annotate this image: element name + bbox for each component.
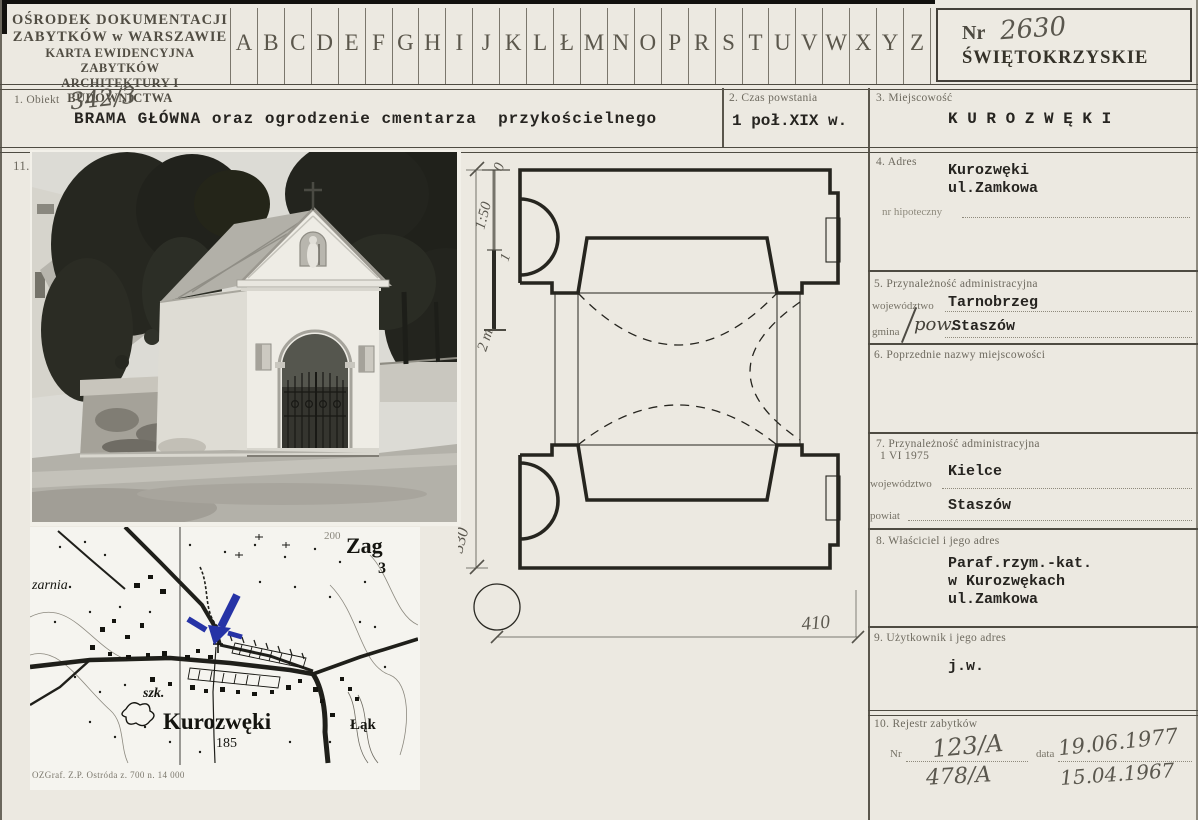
org-line: OŚRODEK DOKUMENTACJI bbox=[12, 12, 228, 29]
map-label-lak: Łąk bbox=[350, 717, 377, 733]
map-label-contour: 200 bbox=[324, 530, 341, 542]
scale-one-label: 1 bbox=[498, 252, 514, 264]
org-header: OŚRODEK DOKUMENTACJI ZABYTKÓW w WARSZAWI… bbox=[12, 12, 228, 78]
place-label: 3. Miejscowość bbox=[876, 92, 952, 104]
field6-label: 6. Poprzednie nazwy miejscowości bbox=[874, 349, 1045, 361]
field8-line2: w Kurozwękach bbox=[948, 573, 1065, 590]
fill-line bbox=[962, 216, 1190, 218]
alphabet-letter: B bbox=[258, 8, 285, 85]
field7-pow-value: Staszów bbox=[948, 497, 1011, 514]
alphabet-letter: S bbox=[716, 8, 743, 85]
photo-index-label: 11. bbox=[13, 158, 30, 174]
field-divider bbox=[868, 270, 1198, 272]
field7-woj-value: Kielce bbox=[948, 463, 1002, 480]
field5-gmina-handwritten: pow. bbox=[914, 314, 955, 335]
fill-line bbox=[945, 336, 1192, 338]
field8-line1: Paraf.rzym.-kat. bbox=[948, 555, 1092, 572]
alphabet-letter: V bbox=[796, 8, 823, 85]
location-map-image: zarnia Zag 3 200 szk. Kurozwęki 185 Łąk bbox=[30, 527, 418, 765]
alphabet-letter: K bbox=[500, 8, 527, 85]
field7-label: 7. Przynależność administracyjna bbox=[876, 438, 1040, 450]
width-dim-label: 410 bbox=[801, 612, 832, 635]
scale-two-label: 2 m. bbox=[475, 324, 498, 354]
field5-woj-value: Tarnobrzeg bbox=[948, 294, 1038, 311]
field7-label2: 1 VI 1975 bbox=[880, 450, 929, 462]
field5-gmina-value: Staszów bbox=[952, 318, 1015, 335]
field-divider bbox=[868, 710, 1198, 716]
alphabet-letter: I bbox=[446, 8, 473, 85]
alphabet-letter: N bbox=[608, 8, 635, 85]
field9-label: 9. Użytkownik i jego adres bbox=[874, 632, 1006, 644]
heritage-record-card: OŚRODEK DOKUMENTACJI ZABYTKÓW w WARSZAWI… bbox=[0, 0, 1198, 820]
org-line: KARTA EWIDENCYJNA ZABYTKÓW bbox=[12, 46, 228, 76]
map-label-elevation: 185 bbox=[216, 736, 237, 751]
map-caption: OZGraf. Z.P. Ostróda z. 700 n. 14 000 bbox=[30, 770, 420, 780]
scan-edge-left bbox=[0, 0, 2, 820]
map-label-szk: szk. bbox=[142, 686, 164, 701]
location-map: zarnia Zag 3 200 szk. Kurozwęki 185 Łąk … bbox=[30, 527, 420, 790]
alphabet-letter: R bbox=[689, 8, 716, 85]
field8-label: 8. Właściciel i jego adres bbox=[876, 535, 1000, 547]
alphabet-letter: Ł bbox=[554, 8, 581, 85]
field10-nr2-handwritten: 478/A bbox=[925, 762, 992, 790]
alphabet-letter: G bbox=[393, 8, 420, 85]
voivodeship-name: ŚWIĘTOKRZYSKIE bbox=[962, 48, 1148, 69]
field10-date-handwritten: 19.06.1977 bbox=[1057, 724, 1179, 760]
location-arrow-icon bbox=[188, 595, 242, 645]
alphabet-index: ABCDEFGHIJKLŁMNOPRSTUVWXYZ bbox=[230, 8, 931, 85]
header-divider bbox=[0, 84, 1198, 90]
alphabet-letter: A bbox=[231, 8, 258, 85]
object-name: BRAMA GŁÓWNA oraz ogrodzenie cmentarza p… bbox=[74, 110, 657, 128]
alphabet-letter: J bbox=[473, 8, 500, 85]
field9-value: j.w. bbox=[948, 658, 984, 675]
field10-nr-label: Nr bbox=[890, 748, 902, 760]
plan-drawing: 0 1:50 1 2 m. 530 410 bbox=[458, 150, 868, 665]
alphabet-letter: X bbox=[850, 8, 877, 85]
register-number-box: Nr 2630 ŚWIĘTOKRZYSKIE bbox=[936, 8, 1192, 82]
fill-line bbox=[906, 760, 1028, 762]
alphabet-letter: Y bbox=[877, 8, 904, 85]
map-label-town: Kurozwęki bbox=[163, 709, 272, 734]
nr-handwritten-value: 2630 bbox=[999, 12, 1067, 47]
gate-photo-image bbox=[32, 152, 457, 522]
alphabet-letter: C bbox=[285, 8, 312, 85]
org-line: ZABYTKÓW w WARSZAWIE bbox=[12, 29, 228, 46]
field4-address-line2: ul.Zamkowa bbox=[948, 180, 1038, 197]
height-dim-label: 530 bbox=[458, 525, 473, 555]
field4-sublabel: nr hipoteczny bbox=[882, 206, 942, 218]
field10-date2-handwritten: 15.04.1967 bbox=[1059, 758, 1175, 790]
time-label: 2. Czas powstania bbox=[729, 92, 817, 104]
divider bbox=[722, 88, 724, 148]
alphabet-letter: E bbox=[339, 8, 366, 85]
field-divider bbox=[868, 626, 1198, 628]
alphabet-letter: D bbox=[312, 8, 339, 85]
time-value: 1 poł.XIX w. bbox=[732, 112, 847, 130]
map-label-zarnia: zarnia bbox=[31, 578, 68, 593]
field5-woj-label: województwo bbox=[872, 300, 934, 312]
field7-pow-label: powiat bbox=[870, 510, 900, 522]
field10-nr-handwritten: 123/A bbox=[931, 729, 1004, 763]
alphabet-letter: M bbox=[581, 8, 608, 85]
field7-woj-label: województwo bbox=[870, 478, 932, 490]
field4-address-line1: Kurozwęki bbox=[948, 162, 1029, 179]
map-label-3: 3 bbox=[378, 560, 386, 577]
alphabet-letter: Z bbox=[904, 8, 931, 85]
field-divider bbox=[868, 528, 1198, 530]
field-divider bbox=[868, 432, 1198, 434]
alphabet-letter: H bbox=[419, 8, 446, 85]
alphabet-letter: U bbox=[769, 8, 796, 85]
map-label-zag: Zag bbox=[346, 533, 383, 558]
fill-line bbox=[908, 519, 1192, 521]
fill-line bbox=[942, 487, 1192, 489]
field5-gmina-label: gmina bbox=[872, 326, 900, 338]
field4-label: 4. Adres bbox=[876, 156, 917, 168]
alphabet-letter: T bbox=[743, 8, 770, 85]
fill-line bbox=[945, 310, 1192, 312]
alphabet-letter: O bbox=[635, 8, 662, 85]
field8-line3: ul.Zamkowa bbox=[948, 591, 1038, 608]
field-divider bbox=[868, 343, 1198, 345]
alphabet-letter: P bbox=[662, 8, 689, 85]
alphabet-letter: F bbox=[366, 8, 393, 85]
column-circle bbox=[474, 584, 520, 630]
gate-photo bbox=[30, 150, 461, 526]
alphabet-letter: L bbox=[527, 8, 554, 85]
scale-bar bbox=[482, 170, 510, 330]
object-label: 1. Obiekt bbox=[14, 94, 60, 106]
place-value: K U R O Z W Ę K I bbox=[948, 110, 1111, 128]
field10-label: 10. Rejestr zabytków bbox=[874, 718, 977, 730]
scan-edge-top bbox=[0, 0, 935, 4]
nr-label: Nr bbox=[962, 22, 985, 45]
field5-label: 5. Przynależność administracyjna bbox=[874, 278, 1038, 290]
field10-date-label: data bbox=[1036, 748, 1054, 760]
alphabet-letter: W bbox=[823, 8, 850, 85]
